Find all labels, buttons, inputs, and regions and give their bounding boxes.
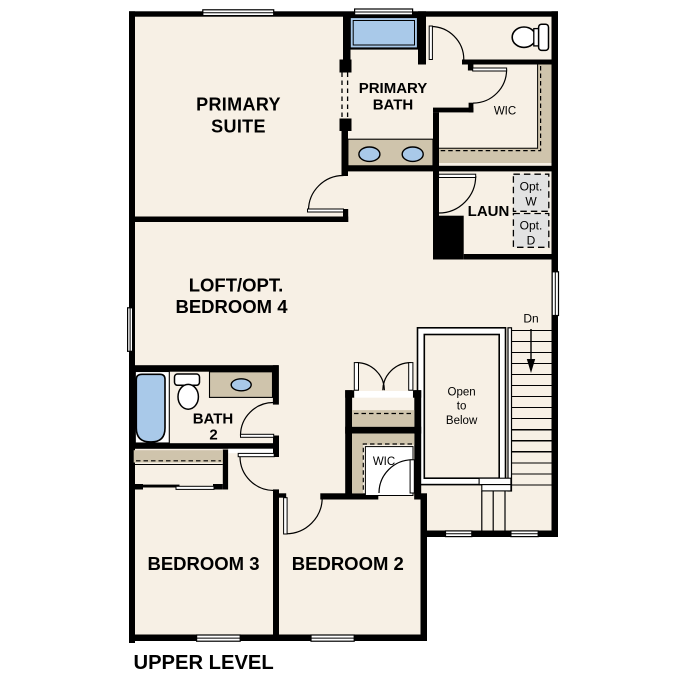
svg-text:BATH: BATH	[373, 97, 414, 114]
svg-text:SUITE: SUITE	[211, 116, 266, 136]
svg-text:2: 2	[209, 427, 217, 444]
svg-text:to: to	[457, 401, 467, 413]
svg-text:PRIMARY: PRIMARY	[196, 95, 281, 115]
svg-text:Opt.: Opt.	[520, 219, 543, 233]
svg-text:BEDROOM 2: BEDROOM 2	[292, 553, 404, 574]
svg-text:BEDROOM 4: BEDROOM 4	[175, 296, 288, 317]
svg-text:LAUN: LAUN	[468, 203, 510, 220]
svg-text:Dn: Dn	[523, 312, 538, 326]
svg-text:WIC: WIC	[494, 106, 516, 118]
svg-text:BEDROOM 3: BEDROOM 3	[147, 553, 259, 574]
svg-text:WIC: WIC	[373, 456, 395, 468]
svg-text:W: W	[525, 195, 537, 209]
svg-text:Open: Open	[448, 387, 476, 399]
svg-text:BATH: BATH	[193, 411, 234, 428]
svg-text:Opt.: Opt.	[520, 180, 543, 194]
svg-text:UPPER LEVEL: UPPER LEVEL	[134, 652, 274, 674]
svg-text:PRIMARY: PRIMARY	[359, 80, 428, 97]
svg-text:Below: Below	[446, 415, 478, 427]
svg-text:D: D	[527, 234, 536, 248]
svg-text:LOFT/OPT.: LOFT/OPT.	[189, 274, 284, 295]
